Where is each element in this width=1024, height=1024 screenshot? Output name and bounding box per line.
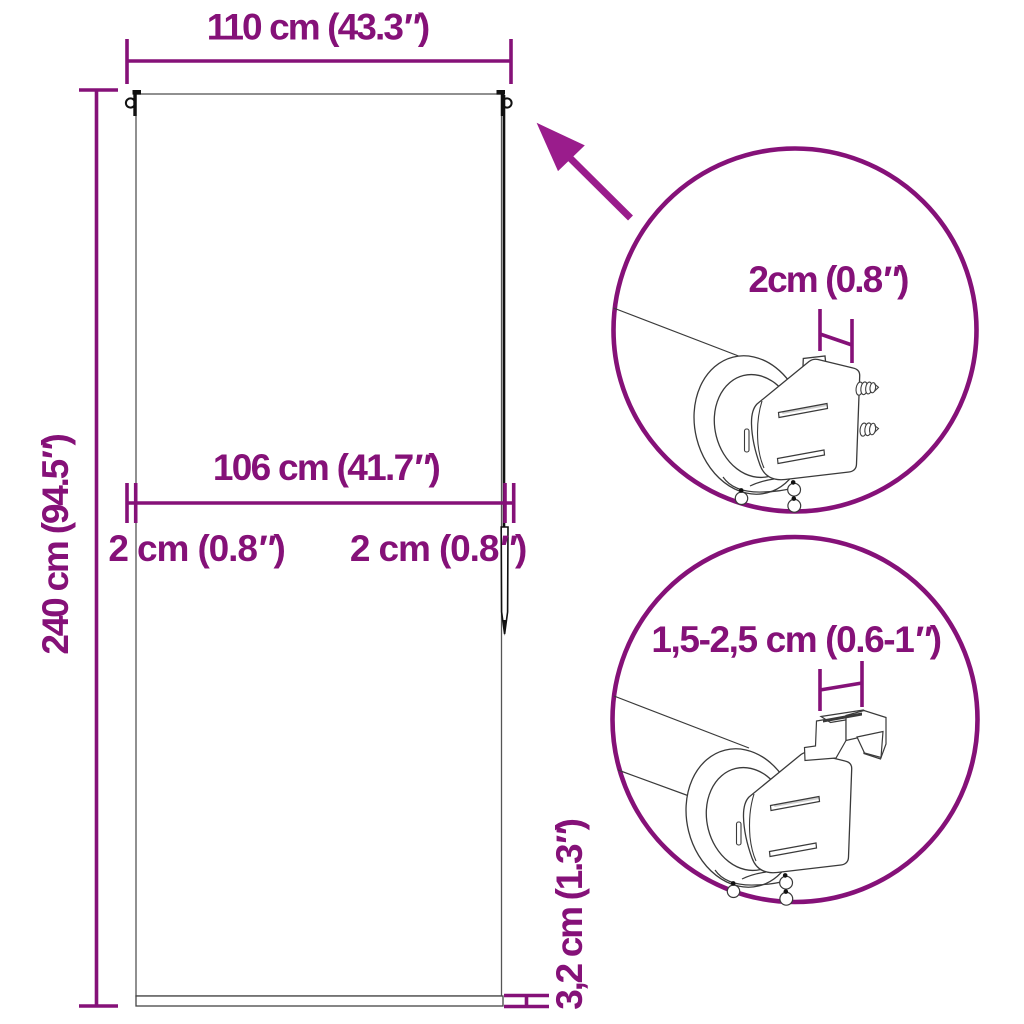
svg-text:110 cm (43.3″): 110 cm (43.3″) [207, 7, 429, 48]
svg-text:2 cm (0.8″): 2 cm (0.8″) [350, 528, 526, 569]
svg-text:240 cm (94.5″): 240 cm (94.5″) [35, 434, 76, 654]
svg-text:2 cm (0.8″): 2 cm (0.8″) [108, 528, 284, 569]
svg-text:2cm (0.8″): 2cm (0.8″) [748, 259, 908, 300]
svg-text:1,5-2,5 cm (0.6-1″): 1,5-2,5 cm (0.6-1″) [651, 619, 940, 660]
svg-text:106 cm (41.7″): 106 cm (41.7″) [213, 447, 440, 488]
svg-text:3,2 cm (1.3″): 3,2 cm (1.3″) [549, 819, 590, 1009]
